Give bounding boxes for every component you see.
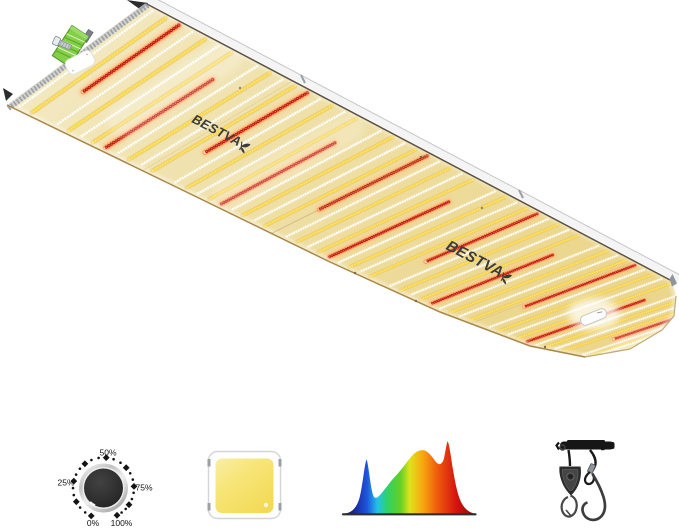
svg-text:25%: 25%	[57, 478, 74, 488]
svg-text:100%: 100%	[111, 518, 133, 528]
svg-text:50%: 50%	[99, 448, 116, 458]
svg-text:75%: 75%	[135, 483, 152, 493]
svg-text:0%: 0%	[87, 518, 100, 528]
